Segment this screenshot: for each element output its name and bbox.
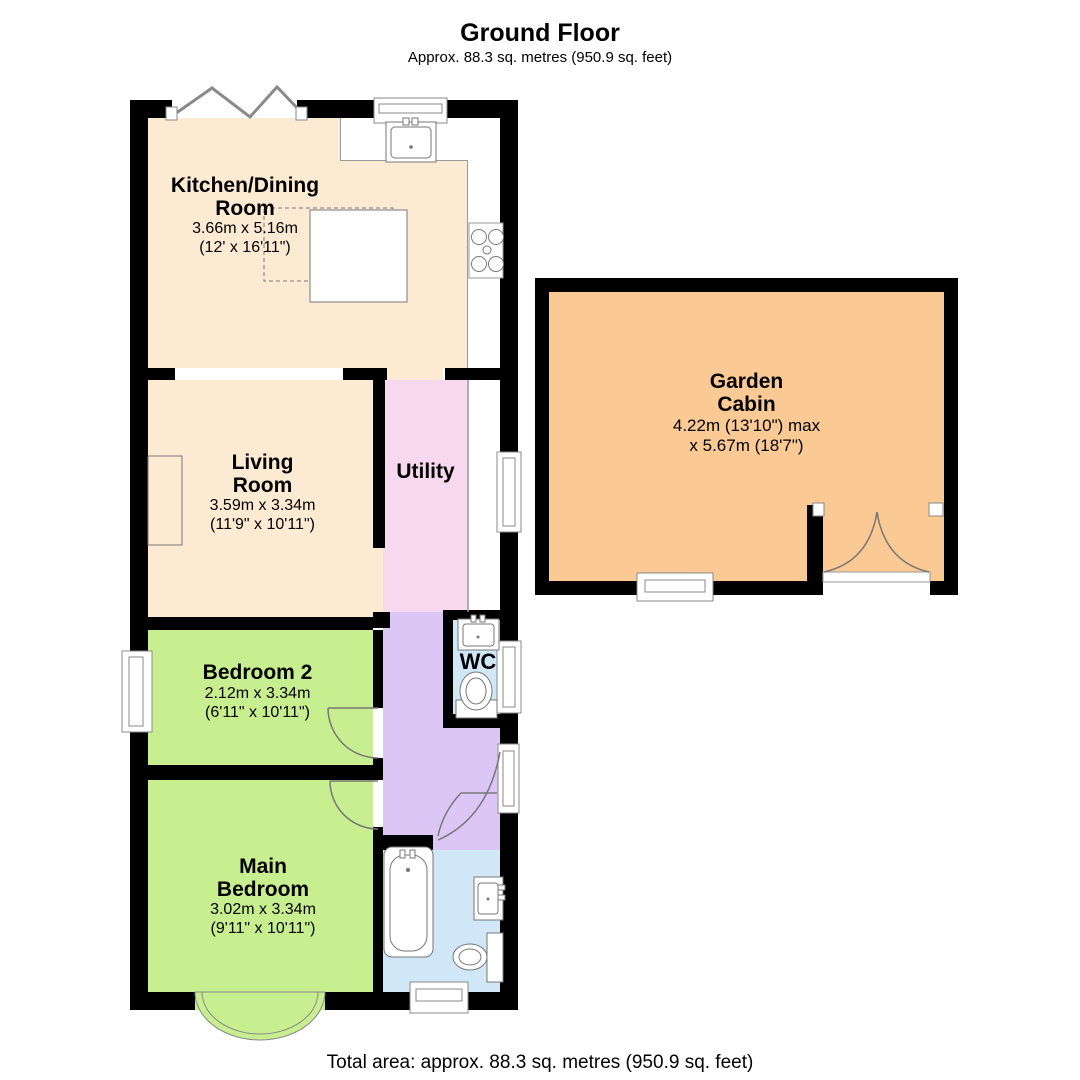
floorplan-canvas: Ground Floor Approx. 88.3 sq. metres (95…: [0, 0, 1080, 1080]
kitchen-counter-right: [467, 160, 504, 368]
cabin-wall-bottom-left: [535, 581, 823, 595]
bedroom2-name: Bedroom 2: [140, 662, 375, 685]
bedroom2-label: Bedroom 2 2.12m x 3.34m (6'11" x 10'11"): [140, 662, 375, 722]
wall-kitchen-living-a: [148, 368, 175, 380]
cabin-wall-top: [535, 278, 958, 292]
bay-opening: [195, 992, 325, 1010]
cabin-wall-door-stub: [807, 505, 823, 595]
cabin-wall-bottom-right: [930, 581, 958, 595]
wall-kitchen-living-c: [445, 368, 503, 380]
cabin-wall-right: [944, 278, 958, 595]
total-area-text: Total area: approx. 88.3 sq. metres (950…: [0, 1052, 1080, 1074]
cabin-name-line1: Garden: [549, 371, 944, 394]
cabin-dims-line2: x 5.67m (18'7"): [549, 436, 944, 456]
main-bedroom-name-line1: Main: [148, 856, 378, 879]
kitchen-opening-floor: [387, 368, 443, 380]
wall-living-bedroom2: [148, 617, 373, 630]
main-bedroom-name-line2: Bedroom: [148, 879, 378, 902]
bedroom2-dims-imperial: (6'11" x 10'11"): [140, 704, 375, 723]
cabin-name-line2: Cabin: [549, 394, 944, 417]
wall-right: [500, 100, 518, 1010]
bedroom2-dims-metric: 2.12m x 3.34m: [140, 685, 375, 704]
garden-cabin-label: Garden Cabin 4.22m (13'10") max x 5.67m …: [549, 371, 944, 456]
wc-label: WC: [450, 650, 506, 674]
wall-bathroom-top: [373, 835, 433, 850]
utility-label: Utility: [383, 461, 468, 484]
utility-floor: [383, 380, 468, 612]
living-name-line2: Room: [150, 475, 375, 498]
bathroom-floor: [383, 850, 503, 992]
kitchen-counter-top: [340, 118, 504, 161]
hall-floor-left: [383, 612, 443, 850]
wall-bedroom2-mainbedroom: [148, 765, 383, 780]
cabin-dims-line1: 4.22m (13'10") max: [549, 416, 944, 436]
main-bedroom-dims-imperial: (9'11" x 10'11"): [148, 920, 378, 939]
kitchen-dims-metric: 3.66m x 5.16m: [135, 220, 355, 239]
living-dims-imperial: (11'9" x 10'11"): [150, 516, 375, 535]
kitchen-name-line2: Room: [135, 198, 355, 221]
wc-name: WC: [450, 650, 506, 674]
wall-wc-bottom: [443, 714, 503, 728]
kitchen-label: Kitchen/Dining Room 3.66m x 5.16m (12' x…: [135, 175, 355, 258]
living-dims-metric: 3.59m x 3.34m: [150, 497, 375, 516]
utility-name: Utility: [383, 461, 468, 484]
main-bedroom-dims-metric: 3.02m x 3.34m: [148, 901, 378, 920]
cabin-wall-left: [535, 278, 549, 595]
page-subtitle: Approx. 88.3 sq. metres (950.9 sq. feet): [0, 49, 1080, 66]
bifold-opening: [172, 100, 297, 118]
main-bedroom-label: Main Bedroom 3.02m x 3.34m (9'11" x 10'1…: [148, 856, 378, 939]
wall-corner-stub: [373, 612, 390, 628]
page-title: Ground Floor: [0, 19, 1080, 48]
living-name-line1: Living: [150, 452, 375, 475]
kitchen-dims-imperial: (12' x 16'11"): [135, 239, 355, 258]
living-label: Living Room 3.59m x 3.34m (11'9" x 10'11…: [150, 452, 375, 535]
kitchen-name-line1: Kitchen/Dining: [135, 175, 355, 198]
